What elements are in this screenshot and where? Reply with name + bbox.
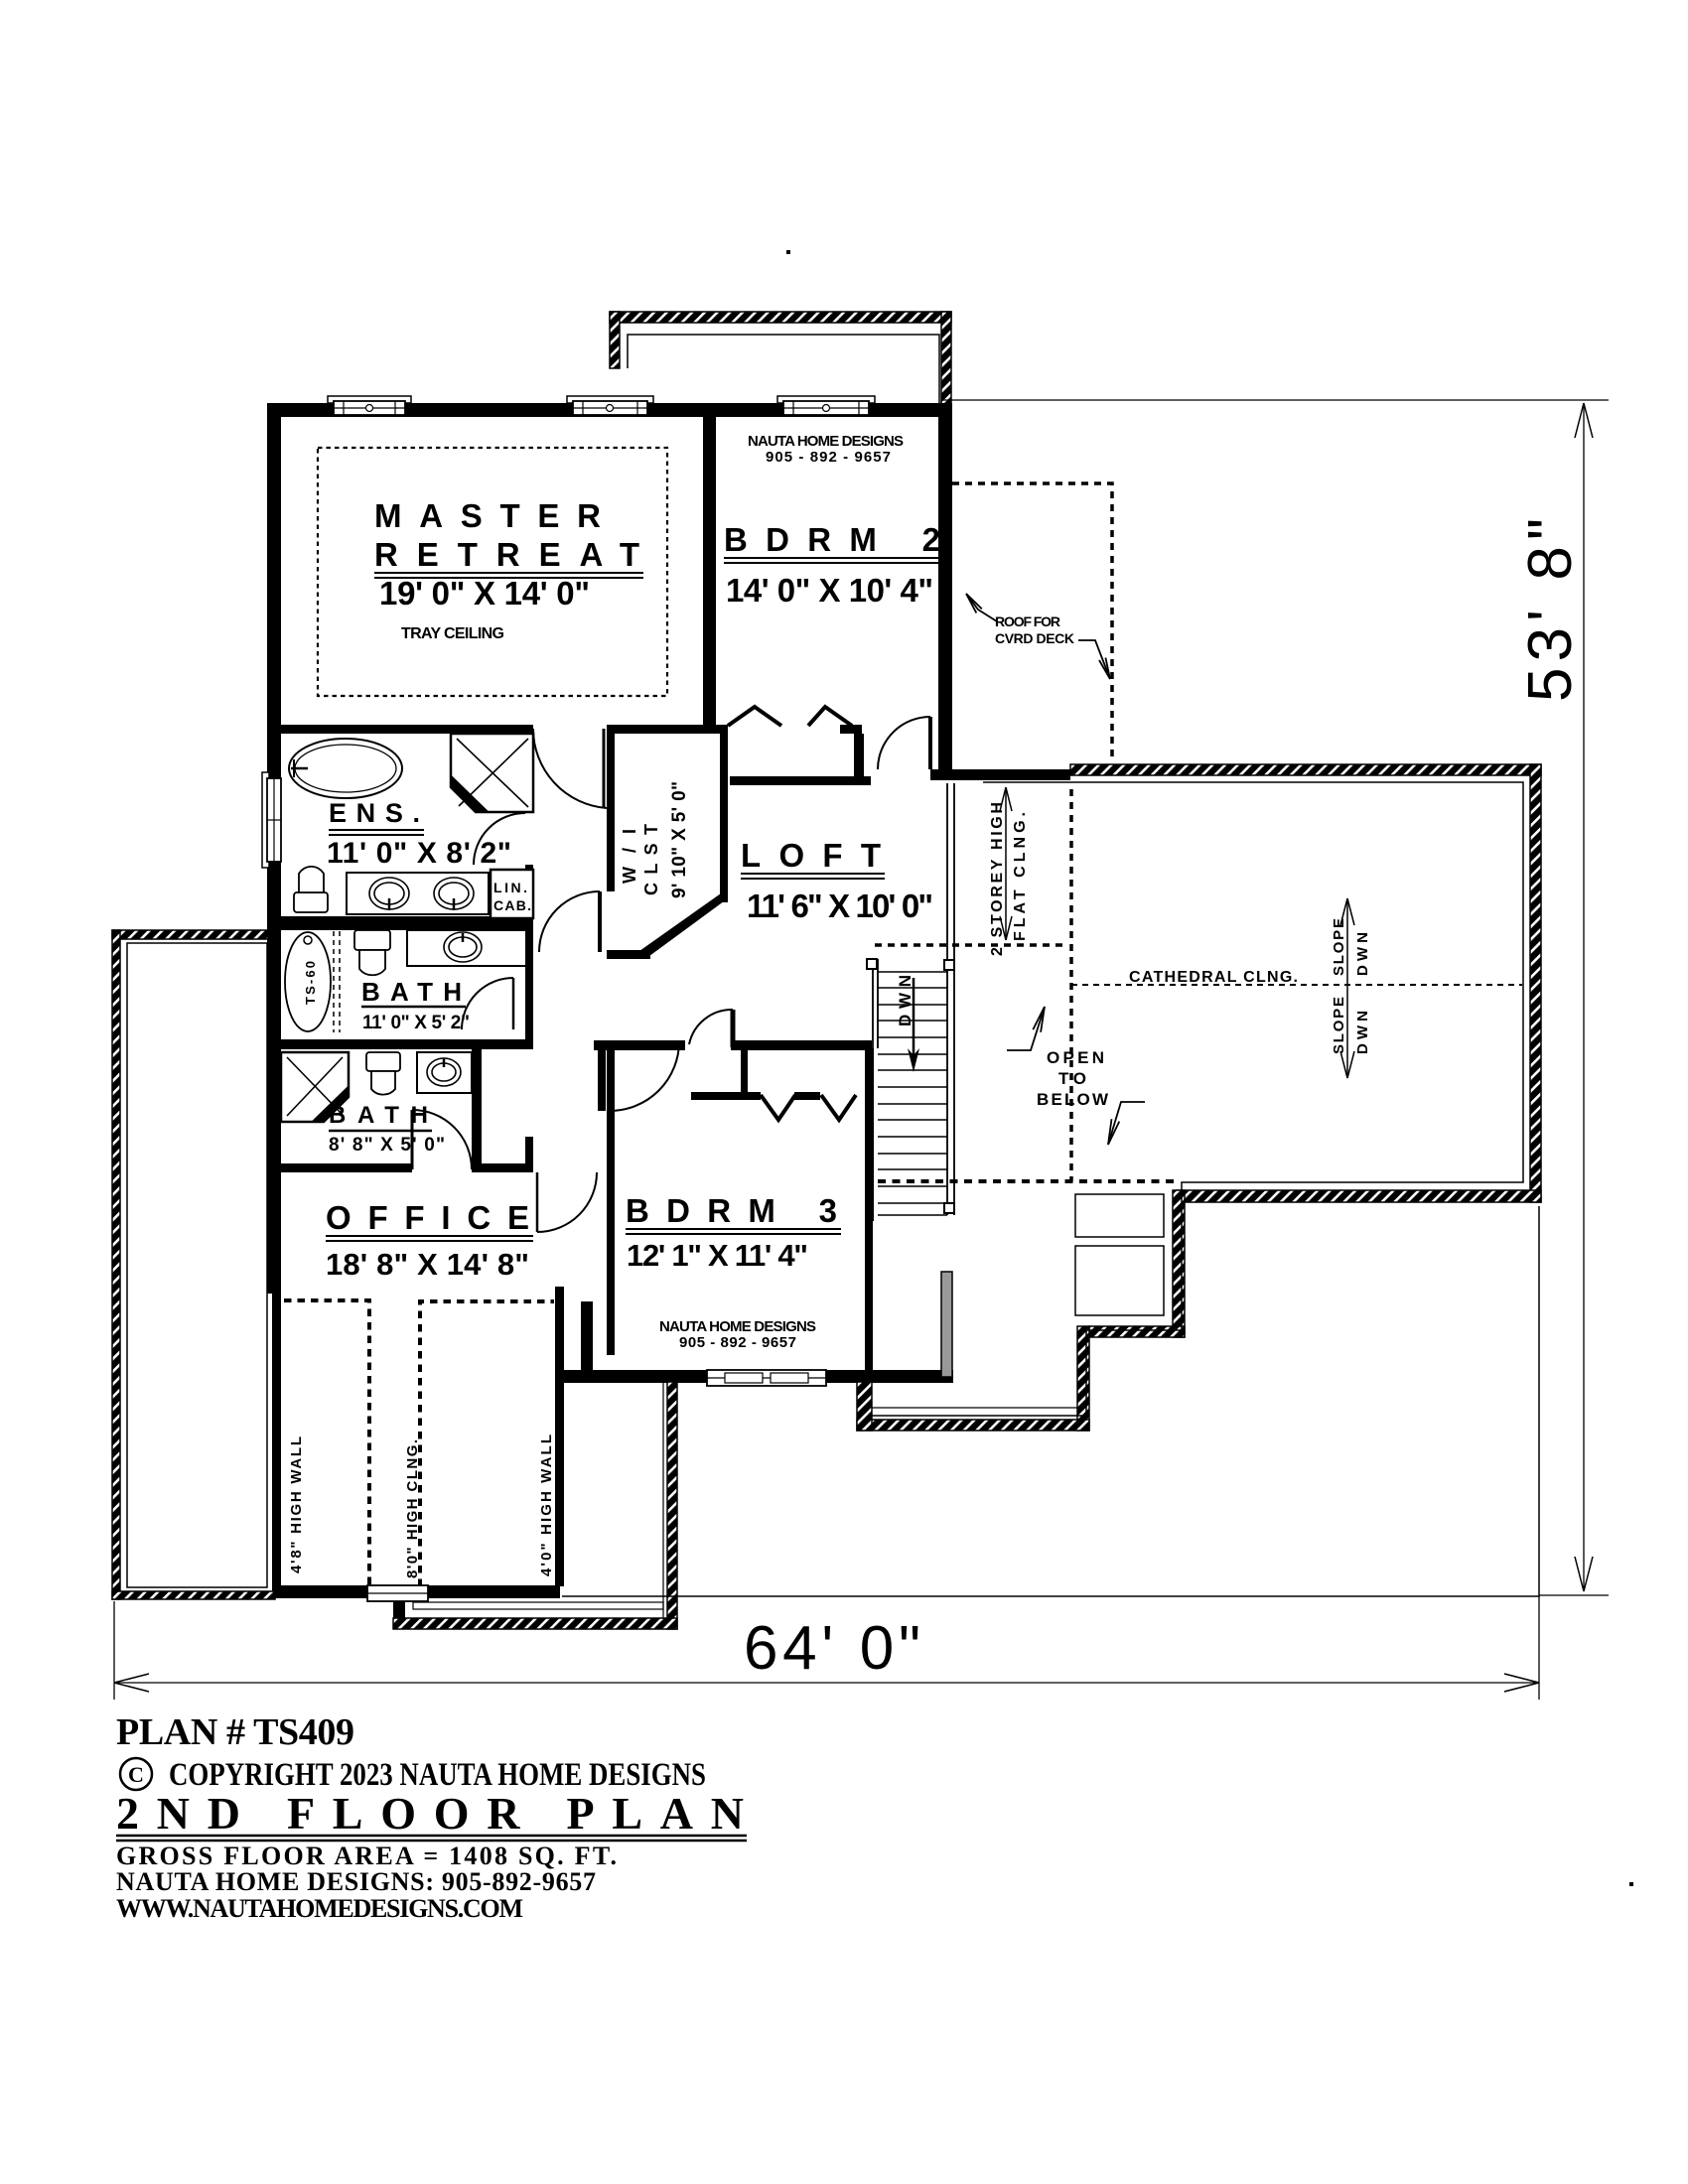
svg-text:C: C [128,1762,144,1787]
svg-text:19' 0" X 14' 0": 19' 0" X 14' 0" [379,575,590,612]
svg-text:12' 1" X 11' 4": 12' 1" X 11' 4" [627,1238,808,1273]
svg-text:8' 8" X 5' 0": 8' 8" X 5' 0" [329,1135,445,1156]
svg-text:905 - 892 - 9657: 905 - 892 - 9657 [766,449,891,466]
svg-text:NAUTA HOME DESIGNS: NAUTA HOME DESIGNS [748,433,904,450]
svg-text:NAUTA HOME DESIGNS: 905-892-9: NAUTA HOME DESIGNS: 905-892-9657 [116,1867,596,1896]
svg-text:11' 0" X 8' 2": 11' 0" X 8' 2" [327,837,511,870]
svg-text:NAUTA HOME DESIGNS: NAUTA HOME DESIGNS [659,1318,816,1335]
svg-text:11' 6" X 10' 0": 11' 6" X 10' 0" [747,887,933,924]
svg-text:905 - 892 - 9657: 905 - 892 - 9657 [679,1334,796,1351]
svg-text:FLAT CLNG.: FLAT CLNG. [1012,812,1029,941]
svg-text:ROOF FOR: ROOF FOR [995,614,1060,629]
svg-text:11' 0" X 5' 2": 11' 0" X 5' 2" [362,1013,470,1033]
svg-text:GROSS FLOOR AREA = 1408: GROSS FLOOR AREA = 1408 SQ. FT. [116,1842,617,1870]
svg-text:9' 10" X 5' 0": 9' 10" X 5' 0" [669,781,690,898]
svg-text:TRAY CEILING: TRAY CEILING [401,625,504,642]
svg-text:CAB.: CAB. [493,897,531,913]
svg-text:WWW.NAUTAHOMEDESIGNS.COM: WWW.NAUTAHOMEDESIGNS.COM [116,1894,523,1923]
svg-text:14' 0" X 10' 4": 14' 0" X 10' 4" [726,572,933,609]
svg-text:PLAN # TS409: PLAN # TS409 [116,1711,354,1753]
svg-text:18' 8" X 14' 8": 18' 8" X 14' 8" [326,1247,529,1282]
svg-text:8'0" HIGH CLNG.: 8'0" HIGH CLNG. [404,1439,421,1578]
svg-text:TO: TO [1058,1069,1086,1088]
svg-text:CVRD DECK: CVRD DECK [995,630,1074,646]
svg-text:TS-60: TS-60 [303,961,318,1005]
svg-text:DWN: DWN [1354,1011,1371,1054]
svg-text:4'8" HIGH WALL: 4'8" HIGH WALL [288,1436,305,1573]
svg-text:DWN: DWN [1354,932,1371,976]
svg-text:SLOPE: SLOPE [1331,997,1347,1054]
svg-text:BELOW: BELOW [1037,1090,1109,1109]
svg-text:SLOPE: SLOPE [1331,918,1347,976]
svg-text:CATHEDRAL CLNG.: CATHEDRAL CLNG. [1129,969,1298,986]
svg-text:DWN: DWN [896,975,914,1026]
svg-text:2 STOREY HIGH: 2 STOREY HIGH [989,802,1006,956]
